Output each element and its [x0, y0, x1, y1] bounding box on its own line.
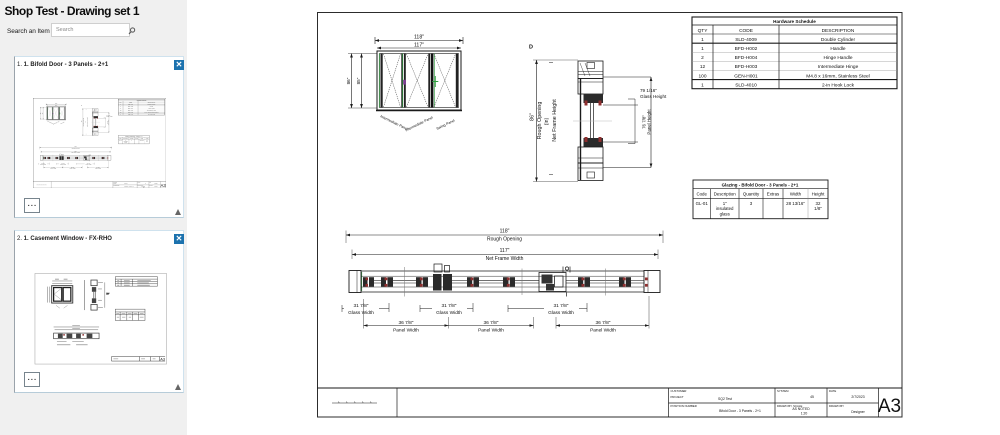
svg-text:31 7/8": 31 7/8"	[441, 303, 456, 309]
svg-text:Hinge Handle: Hinge Handle	[823, 55, 852, 61]
svg-text:2/7/2023: 2/7/2023	[851, 395, 864, 399]
svg-text:2: 2	[701, 55, 704, 61]
svg-text:QTY: QTY	[698, 28, 709, 34]
svg-text:36 7/8": 36 7/8"	[398, 320, 413, 326]
svg-text:glass: glass	[720, 211, 731, 216]
svg-text:12: 12	[700, 64, 706, 70]
svg-text:Intermediate Hinge: Intermediate Hinge	[818, 64, 859, 70]
svg-text:SYSTEM: SYSTEM	[777, 389, 789, 393]
svg-text:Glass Width: Glass Width	[348, 310, 374, 316]
svg-text:M4.8 x 16mm, Stainless Steel: M4.8 x 16mm, Stainless Steel	[806, 73, 869, 79]
svg-text:SQ2 Test: SQ2 Test	[718, 397, 732, 401]
svg-text:PROJECT: PROJECT	[671, 395, 684, 399]
svg-text:Width: Width	[790, 192, 802, 197]
svg-text:31 7/8": 31 7/8"	[353, 303, 368, 309]
svg-text:(in): (in)	[544, 117, 550, 125]
svg-text:86": 86"	[530, 113, 536, 121]
svg-text:Double Cylinder: Double Cylinder	[821, 37, 856, 43]
svg-text:Code: Code	[696, 192, 707, 197]
svg-text:A3: A3	[878, 396, 901, 417]
svg-text:BFD-H004: BFD-H004	[735, 55, 758, 61]
svg-text:POSITION NUMBER: POSITION NUMBER	[671, 404, 697, 408]
svg-text:BFD-H002: BFD-H002	[735, 46, 758, 52]
svg-text:100: 100	[698, 73, 706, 79]
svg-text:1: 1	[701, 82, 704, 88]
svg-text:SLD-4010: SLD-4010	[735, 82, 757, 88]
svg-text:36 7/8": 36 7/8"	[483, 320, 498, 326]
svg-text:118": 118"	[500, 229, 510, 235]
svg-text:DRAWN BY: DRAWN BY	[829, 404, 844, 408]
svg-text:86": 86"	[346, 77, 351, 84]
svg-text:Handle: Handle	[830, 46, 846, 52]
svg-text:SLD-4009: SLD-4009	[735, 37, 757, 43]
svg-text:Quantity: Quantity	[743, 192, 760, 197]
svg-text:Panel Width: Panel Width	[393, 328, 419, 334]
svg-text:1: 1	[701, 46, 704, 52]
svg-text:1:20: 1:20	[801, 412, 808, 416]
svg-text:Net Frame Width: Net Frame Width	[486, 256, 524, 262]
svg-text:DESCRIPTION: DESCRIPTION	[822, 28, 855, 34]
svg-text:Panel Width: Panel Width	[590, 328, 616, 334]
svg-text:CODE: CODE	[739, 28, 753, 34]
svg-text:CUSTOMER: CUSTOMER	[671, 389, 687, 393]
svg-text:79 1/16": 79 1/16"	[640, 88, 657, 93]
svg-text:85": 85"	[356, 77, 361, 84]
svg-text:Rough Opening: Rough Opening	[487, 237, 522, 243]
svg-text:Glazing - Bifold Door - 3 Pane: Glazing - Bifold Door - 3 Panels - 2+1	[722, 182, 799, 187]
svg-text:45: 45	[810, 395, 814, 399]
svg-text:Extras: Extras	[767, 192, 780, 197]
svg-text:Glass Width: Glass Width	[548, 310, 574, 316]
svg-text:2-in Hook Lock: 2-in Hook Lock	[822, 82, 855, 88]
svg-text:1/8": 1/8"	[814, 206, 822, 211]
svg-text:GEN-H001: GEN-H001	[734, 73, 758, 79]
svg-text:Panel Width: Panel Width	[478, 328, 504, 334]
svg-text:28 13/16": 28 13/16"	[786, 201, 805, 206]
svg-text:Designer: Designer	[851, 410, 865, 414]
svg-text:BFD-H003: BFD-H003	[735, 64, 758, 70]
svg-text:31 7/8": 31 7/8"	[553, 303, 568, 309]
svg-text:Height: Height	[812, 192, 825, 197]
svg-text:Glass Width: Glass Width	[436, 310, 462, 316]
svg-text:Glass Height: Glass Height	[640, 94, 667, 99]
svg-text:Hardware Schedule: Hardware Schedule	[773, 19, 816, 24]
svg-text:118": 118"	[414, 35, 424, 41]
svg-text:Bifold Door - 3 Panels - 2+1: Bifold Door - 3 Panels - 2+1	[719, 409, 761, 413]
svg-text:GL-01: GL-01	[696, 201, 709, 206]
svg-text:Net Frame Height: Net Frame Height	[552, 99, 558, 142]
svg-text:DATE: DATE	[829, 389, 836, 393]
svg-text:D: D	[529, 45, 533, 51]
svg-text:Rough Opening: Rough Opening	[537, 102, 543, 140]
svg-text:36 7/8": 36 7/8"	[595, 320, 610, 326]
svg-text:Description: Description	[714, 192, 737, 197]
svg-text:1: 1	[701, 37, 704, 43]
svg-text:117": 117"	[414, 43, 424, 49]
svg-text:AS NOTED: AS NOTED	[792, 407, 810, 411]
svg-text:117": 117"	[500, 248, 510, 254]
